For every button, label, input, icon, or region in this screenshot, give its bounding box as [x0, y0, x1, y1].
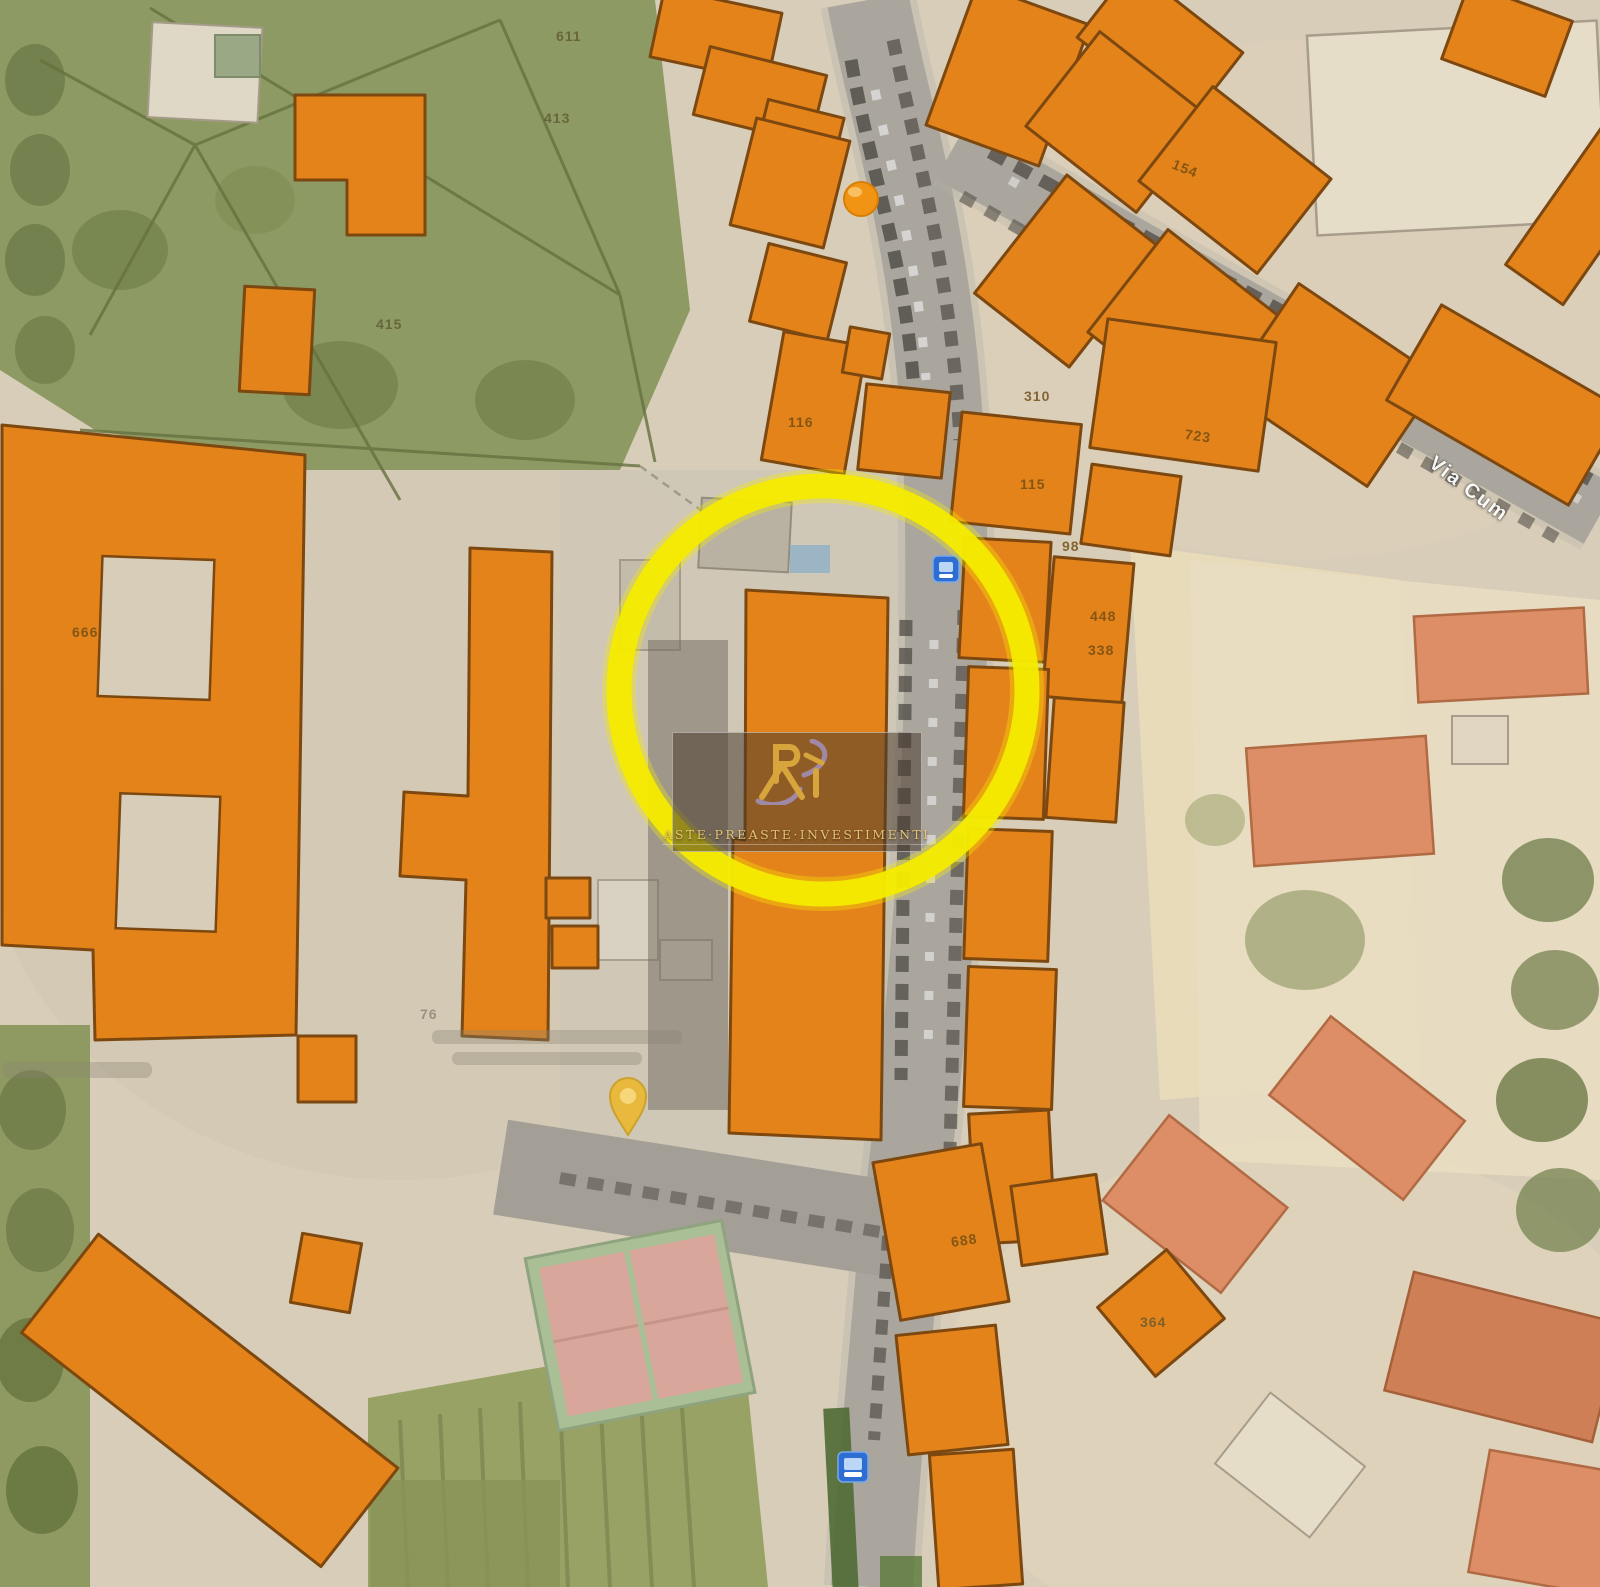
- aerial-map[interactable]: 6114134156661161547233101159844833868836…: [0, 0, 1600, 1587]
- watermark-card: ASTE·PREASTE·INVESTIMENTI: [672, 732, 922, 852]
- bus-stop-icon[interactable]: [933, 556, 959, 582]
- agency-logo-icon: [742, 739, 852, 805]
- watermark-caption: ASTE·PREASTE·INVESTIMENTI: [662, 827, 933, 845]
- tennis-courts: [525, 1221, 755, 1431]
- bus-stop-icon[interactable]: [838, 1452, 868, 1482]
- poi-dot-icon[interactable]: [844, 182, 878, 216]
